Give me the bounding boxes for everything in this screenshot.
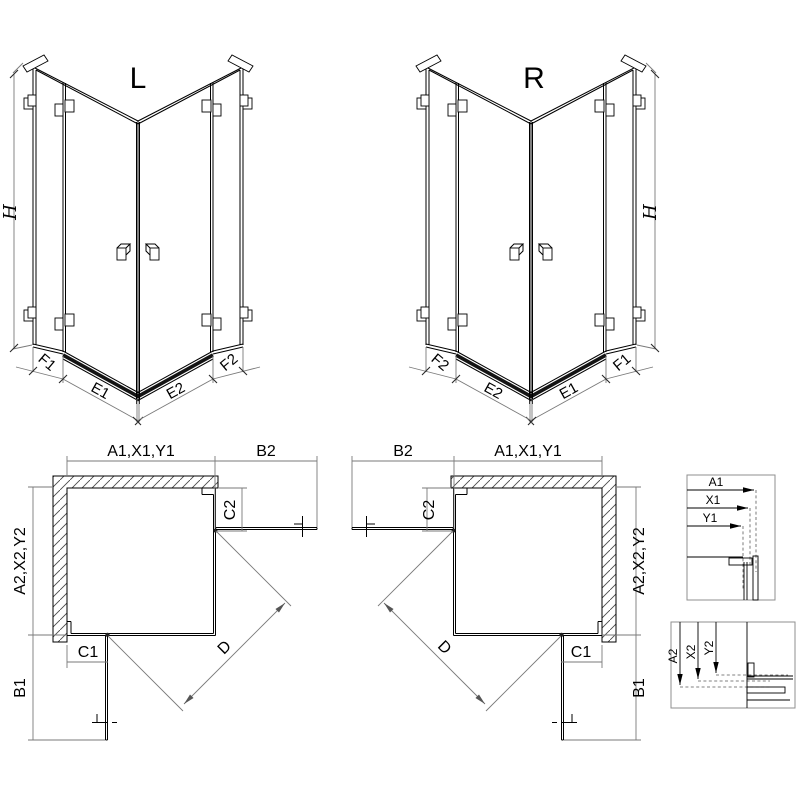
plan-left-a1-label: A1,X1,Y1 [107,443,175,460]
plan-left-b1-label: B1 [12,678,29,698]
iso-right-f2-label: F2 [428,350,452,374]
detail-top-x1-label: X1 [706,493,721,507]
plan-right-a2-label: A2,X2,Y2 [631,527,648,595]
detail-top-a1-label: A1 [709,475,724,489]
plan-left-b2-label: B2 [256,443,276,460]
plan-right-c1-label: C1 [571,644,592,661]
iso-left-f1-label: F1 [35,350,59,374]
plan-left-c2-label: C2 [222,500,239,521]
detail-box-bottom: A2 X2 Y2 [666,622,795,708]
plan-right-d-label: D [434,638,454,658]
iso-right-height-label: H [640,204,661,221]
detail-bottom-a2-label: A2 [666,648,680,663]
plan-right-a1-label: A1,X1,Y1 [494,443,562,460]
detail-top-y1-label: Y1 [703,511,718,525]
plan-left-c1-label: C1 [78,644,99,661]
detail-box-top: A1 X1 Y1 [687,475,775,600]
iso-left-view: L H F1 E1 E2 F2 [0,55,260,425]
plan-left-wall-hatch [53,476,218,642]
iso-left-height-label: H [0,204,21,221]
iso-right-e1-label: E1 [557,379,581,403]
iso-left-e1-label: E1 [88,379,112,403]
iso-left-f2-label: F2 [217,350,241,374]
iso-right-variant-label: R [523,62,545,95]
iso-right-e2-label: E2 [481,379,505,403]
plan-right-c2-label: C2 [421,500,438,521]
plan-right-b1-label: B1 [631,678,648,698]
plan-right-wall-hatch [451,476,616,642]
detail-bottom-y2-label: Y2 [702,640,716,655]
plan-left-d-label: D [215,638,235,658]
plan-right-b2-label: B2 [393,443,413,460]
detail-bottom-x2-label: X2 [684,644,698,659]
iso-right-view: R H F2 E2 E1 F1 [409,55,661,425]
iso-left-e2-label: E2 [164,379,188,403]
iso-right-f1-label: F1 [610,350,634,374]
plan-left-a2-label: A2,X2,Y2 [12,527,29,595]
shower-enclosure-technical-drawing: L H F1 E1 E2 F2 R H F2 E2 E1 F1 A1,X1,Y1… [0,0,800,800]
iso-left-variant-label: L [130,62,147,95]
